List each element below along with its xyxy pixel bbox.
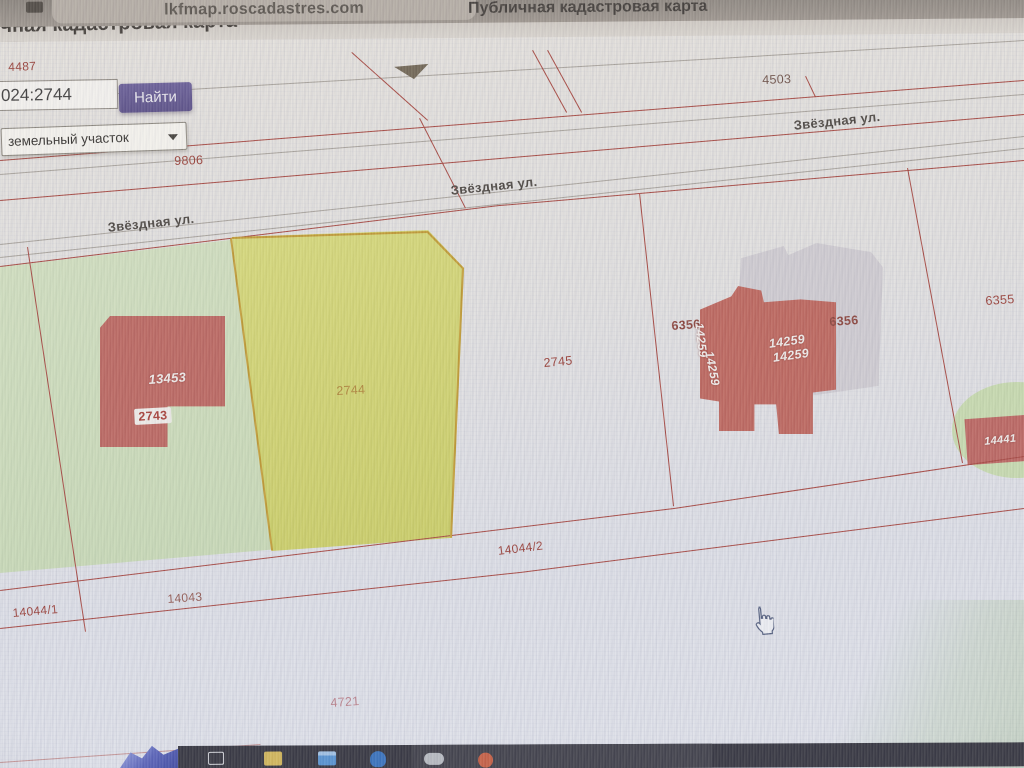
building-label: 14441 xyxy=(984,433,1017,448)
parcel-boundary xyxy=(547,50,582,113)
menu-icon[interactable] xyxy=(26,2,43,13)
parcel-boundary xyxy=(532,50,567,113)
building-label-13453: 13453 xyxy=(148,369,187,387)
cadastral-map[interactable]: 14441 4487 4503 9806 Звёздная ул. Звёздн… xyxy=(0,0,1024,768)
parcel-label-4721: 4721 xyxy=(330,694,360,710)
address-bar[interactable]: lkfmap.roscadastres.com xyxy=(52,0,476,24)
parcel-label-14044-2: 14044/2 xyxy=(497,538,544,557)
parcel-label-2745: 2745 xyxy=(543,353,573,369)
parcel-label-2744: 2744 xyxy=(336,382,366,397)
drive-icon[interactable] xyxy=(370,751,386,767)
parcel-label-14044-1: 14044/1 xyxy=(12,602,59,620)
parcel-label-4503: 4503 xyxy=(762,72,791,87)
cloud-icon[interactable] xyxy=(424,753,444,765)
parcel-label-2743: 2743 xyxy=(134,407,172,425)
taskbar[interactable] xyxy=(178,742,1024,768)
parcel-boundary xyxy=(907,168,963,463)
street-label: Звёздная ул. xyxy=(107,211,195,235)
find-button[interactable]: Найти xyxy=(119,82,193,113)
parcel-boundary xyxy=(639,193,674,506)
search-input[interactable] xyxy=(0,79,118,111)
building-14259[interactable] xyxy=(700,286,836,434)
parcel-label-6355: 6355 xyxy=(985,292,1015,308)
browser-tab-title: Публичная кадастровая карта xyxy=(468,0,707,18)
taskbar-segment xyxy=(412,744,712,768)
road-boundary xyxy=(674,456,1024,509)
folder-icon[interactable] xyxy=(264,752,282,766)
parcel-label-6356: 6356 xyxy=(829,313,859,329)
apps-icon[interactable] xyxy=(208,752,224,765)
street-label: Звёздная ул. xyxy=(450,174,538,198)
parcel-label-4487: 4487 xyxy=(8,59,36,74)
parcel-label-14043: 14043 xyxy=(167,590,203,606)
photographed-screen: 14441 4487 4503 9806 Звёздная ул. Звёздн… xyxy=(0,0,1024,768)
chevron-down-icon xyxy=(168,134,178,140)
hand-pointer-cursor xyxy=(748,605,775,644)
parcel-boundary xyxy=(351,52,428,121)
parcel-boundary xyxy=(805,76,816,97)
parcel-label-9806: 9806 xyxy=(174,153,203,168)
parcel-type-value: земельный участок xyxy=(8,130,129,149)
browser-icon[interactable] xyxy=(478,753,493,768)
photos-icon[interactable] xyxy=(318,751,336,765)
